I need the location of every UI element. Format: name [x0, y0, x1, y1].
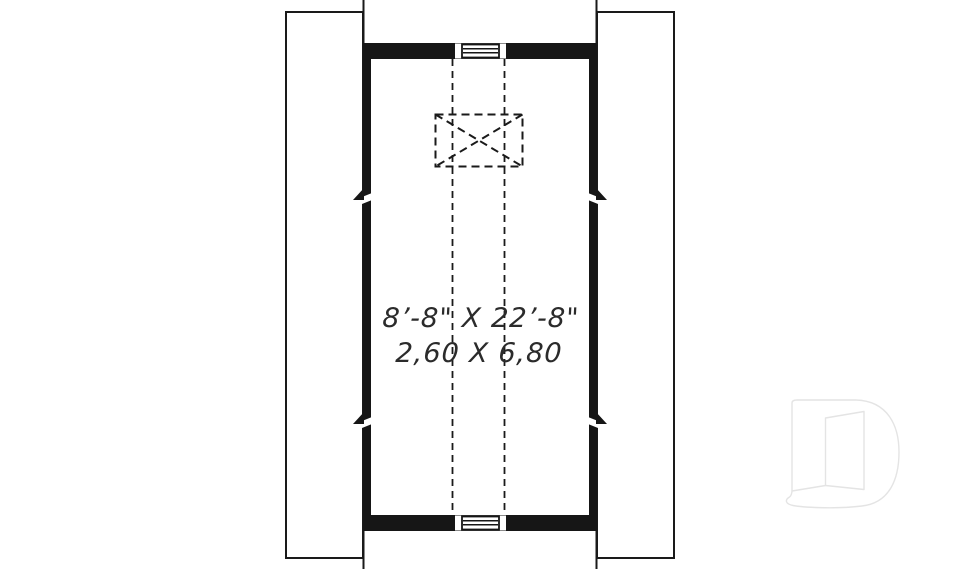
d-logo-icon: [786, 400, 899, 508]
gable-vent-top-icon: [455, 44, 506, 59]
d-logo-door: [826, 412, 865, 490]
gable-vent-bottom-icon: [455, 516, 506, 531]
d-logo-outer: [786, 400, 899, 508]
roof-panel-left: [286, 12, 363, 558]
plan-drawing: [0, 0, 960, 569]
room-dimension-metric: 2,60 X 6,80: [338, 336, 620, 371]
attic-floor-plan: 8’-8" X 22’-8" 2,60 X 6,80: [0, 0, 960, 569]
roof-panel-right: [597, 12, 674, 558]
room-dimension-imperial: 8’-8" X 22’-8": [340, 301, 622, 336]
vent-louver-frame: [462, 517, 499, 530]
room-interior: [371, 59, 589, 515]
d-logo-door-sill: [792, 486, 826, 492]
room-dimensions: 8’-8" X 22’-8" 2,60 X 6,80: [338, 301, 622, 371]
vent-louver-frame: [462, 45, 499, 58]
